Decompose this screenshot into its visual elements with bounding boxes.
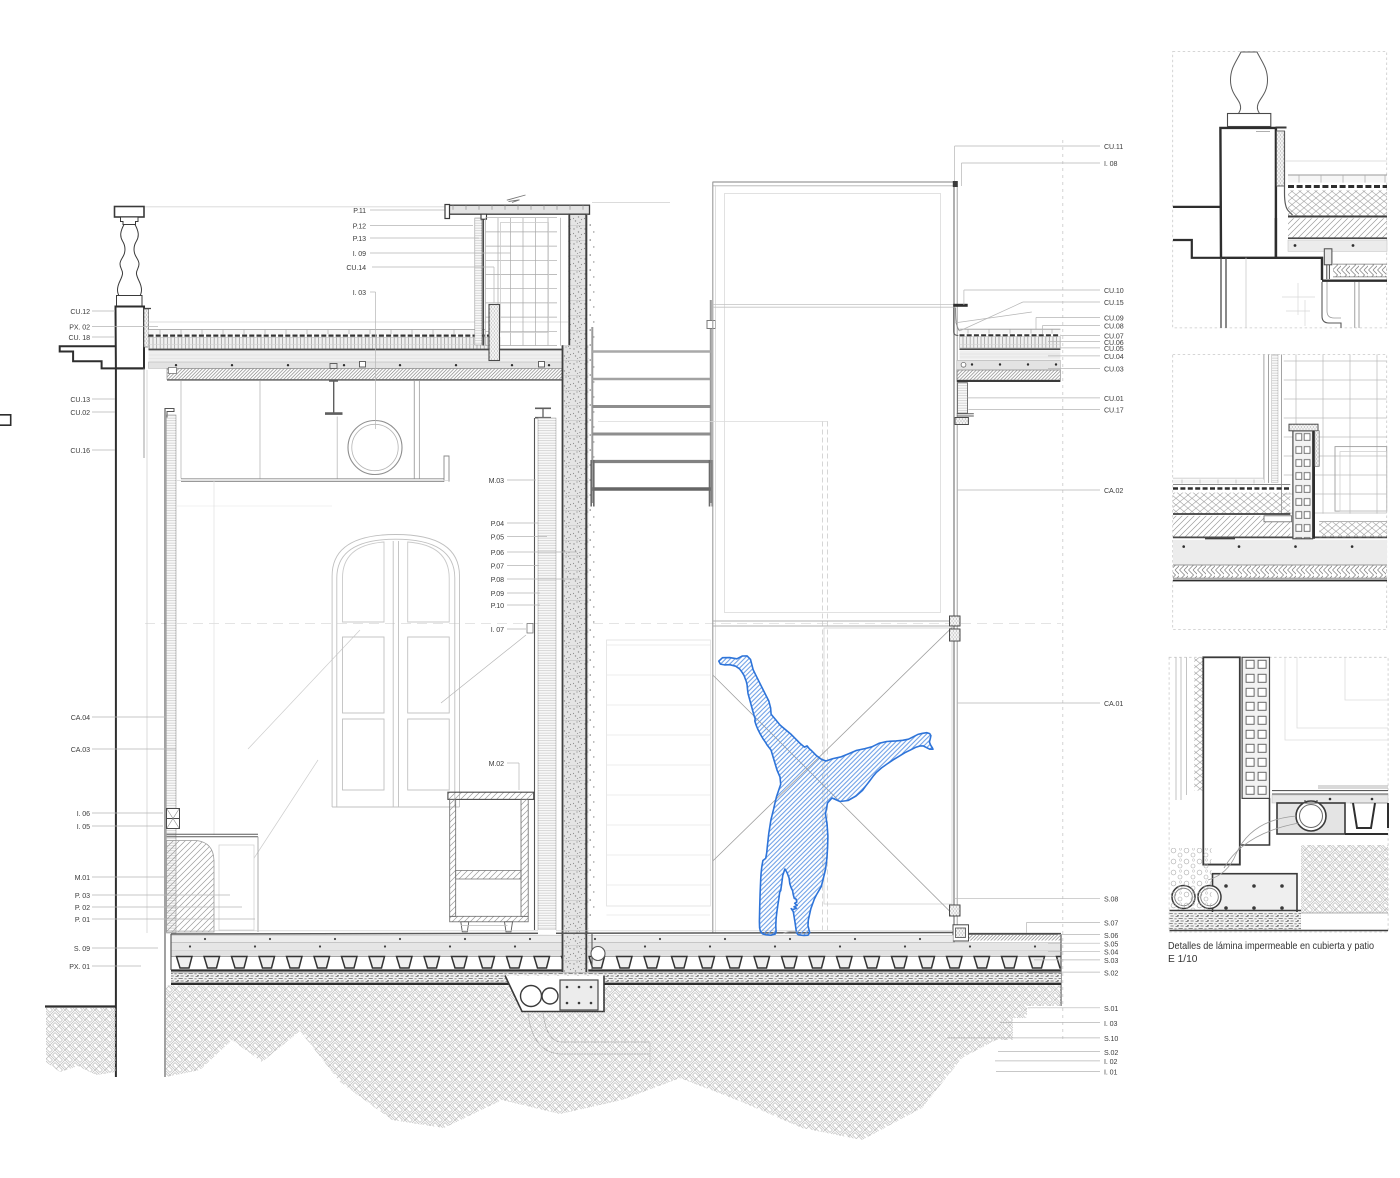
svg-text:CA.03: CA.03 bbox=[71, 746, 90, 754]
svg-text:S.05: S.05 bbox=[1104, 940, 1118, 948]
svg-text:CU.04: CU.04 bbox=[1104, 353, 1124, 361]
svg-text:P.07: P.07 bbox=[491, 563, 504, 571]
svg-text:CU.15: CU.15 bbox=[1104, 299, 1124, 307]
svg-text:I. 09: I. 09 bbox=[353, 250, 366, 258]
svg-text:CU.16: CU.16 bbox=[70, 447, 90, 455]
svg-text:CA.04: CA.04 bbox=[71, 714, 90, 722]
svg-text:P.06: P.06 bbox=[491, 549, 504, 557]
svg-text:CA.01: CA.01 bbox=[1104, 700, 1123, 708]
svg-text:PX. 01: PX. 01 bbox=[69, 963, 90, 971]
svg-text:I. 08: I. 08 bbox=[1104, 160, 1117, 168]
svg-text:CU.08: CU.08 bbox=[1104, 323, 1124, 331]
svg-text:CU. 18: CU. 18 bbox=[69, 334, 91, 342]
svg-text:I. 06: I. 06 bbox=[77, 810, 90, 818]
svg-text:CU.02: CU.02 bbox=[70, 409, 90, 417]
svg-text:S.06: S.06 bbox=[1104, 932, 1118, 940]
svg-text:P. 01: P. 01 bbox=[75, 916, 90, 924]
svg-text:P.05: P.05 bbox=[491, 534, 504, 542]
svg-text:M.03: M.03 bbox=[489, 477, 505, 485]
svg-text:E 1/10: E 1/10 bbox=[1168, 954, 1198, 965]
svg-text:CU.03: CU.03 bbox=[1104, 366, 1124, 374]
svg-text:S.07: S.07 bbox=[1104, 920, 1118, 928]
svg-text:S. 09: S. 09 bbox=[74, 945, 90, 953]
svg-text:I. 03: I. 03 bbox=[1104, 1020, 1117, 1028]
svg-text:PX. 02: PX. 02 bbox=[69, 324, 90, 332]
svg-text:P.13: P.13 bbox=[353, 235, 366, 243]
svg-text:M.01: M.01 bbox=[75, 874, 91, 882]
svg-text:M.02: M.02 bbox=[489, 760, 505, 768]
svg-text:I. 02: I. 02 bbox=[1104, 1058, 1117, 1066]
svg-text:P. 02: P. 02 bbox=[75, 904, 90, 912]
svg-text:P.12: P.12 bbox=[353, 223, 366, 231]
svg-text:CU.05: CU.05 bbox=[1104, 345, 1124, 353]
svg-text:P.04: P.04 bbox=[491, 520, 504, 528]
svg-text:CA.02: CA.02 bbox=[1104, 487, 1123, 495]
svg-text:I. 05: I. 05 bbox=[77, 823, 90, 831]
svg-text:P.11: P.11 bbox=[353, 207, 366, 215]
svg-text:P.09: P.09 bbox=[491, 590, 504, 598]
svg-text:CU.01: CU.01 bbox=[1104, 395, 1124, 403]
svg-text:I. 07: I. 07 bbox=[491, 626, 504, 634]
svg-text:CU.14: CU.14 bbox=[346, 264, 366, 272]
svg-text:S.02: S.02 bbox=[1104, 1049, 1118, 1057]
svg-text:CU.17: CU.17 bbox=[1104, 407, 1124, 415]
svg-text:CU.09: CU.09 bbox=[1104, 315, 1124, 323]
svg-text:S.08: S.08 bbox=[1104, 896, 1118, 904]
svg-text:S.03: S.03 bbox=[1104, 957, 1118, 965]
svg-text:P. 03: P. 03 bbox=[75, 892, 90, 900]
svg-text:CU.11: CU.11 bbox=[1104, 143, 1123, 151]
svg-text:S.10: S.10 bbox=[1104, 1035, 1118, 1043]
svg-text:S.04: S.04 bbox=[1104, 949, 1118, 957]
svg-text:Detalles de lámina impermeable: Detalles de lámina impermeable en cubier… bbox=[1168, 941, 1374, 952]
svg-text:CU.10: CU.10 bbox=[1104, 287, 1124, 295]
svg-text:P.08: P.08 bbox=[491, 576, 504, 584]
svg-text:P.10: P.10 bbox=[491, 602, 504, 610]
svg-text:CU.12: CU.12 bbox=[70, 308, 90, 316]
svg-text:S.02: S.02 bbox=[1104, 969, 1118, 977]
svg-text:I. 01: I. 01 bbox=[1104, 1069, 1117, 1077]
svg-text:I. 03: I. 03 bbox=[353, 289, 366, 297]
svg-text:S.01: S.01 bbox=[1104, 1005, 1118, 1013]
svg-text:CU.13: CU.13 bbox=[70, 396, 90, 404]
